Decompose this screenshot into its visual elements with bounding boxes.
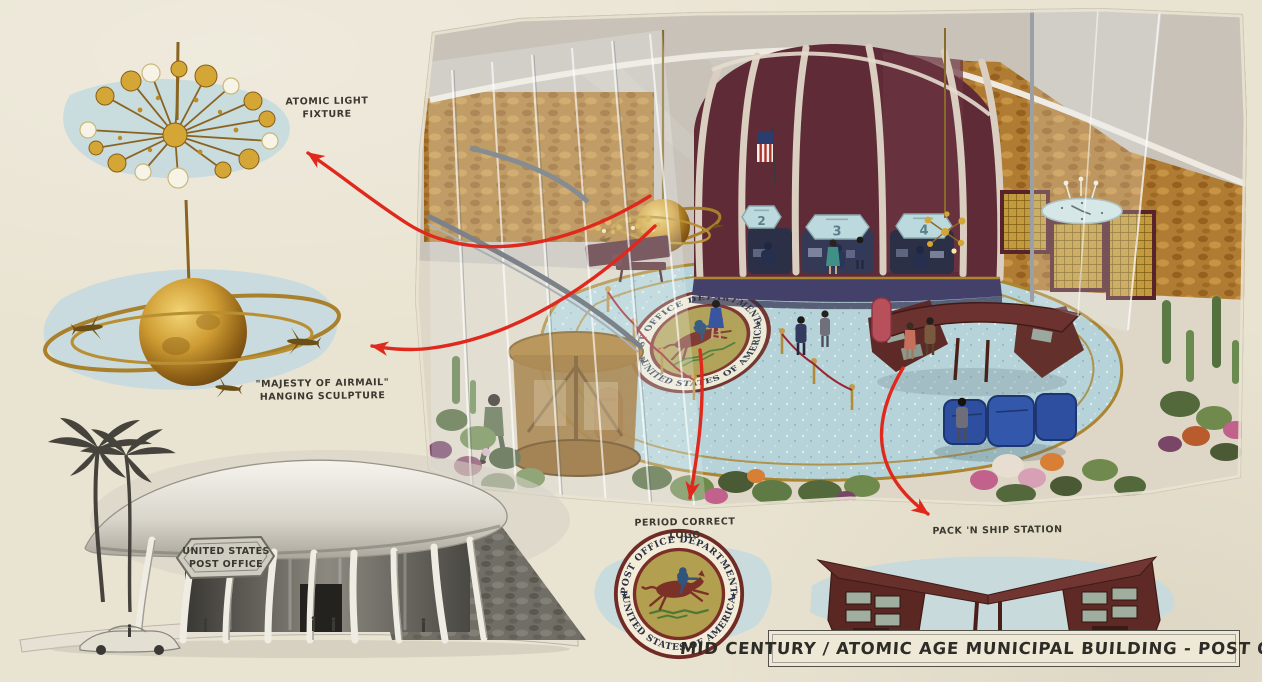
window-sign-2: 2 xyxy=(742,206,781,228)
logo-label: Period Correct Logo xyxy=(620,515,750,543)
building-sign: United States Post Office xyxy=(177,537,274,578)
building-exterior-sketch: United States Post Office xyxy=(10,420,610,682)
window-number: 2 xyxy=(757,214,765,228)
mail-bins xyxy=(934,394,1076,462)
pack-ship-label: Pack 'N Ship Station xyxy=(930,523,1065,538)
building-sign-line1: United States xyxy=(182,546,270,557)
window-number: 3 xyxy=(832,225,841,240)
light-fixture-label: Atomic Light Fixture xyxy=(262,94,392,122)
window-number: 4 xyxy=(919,224,928,239)
building-sign-line2: Post Office xyxy=(189,559,263,570)
airmail-label-line2: Hanging Sculpture xyxy=(255,389,390,404)
board-title: Mid Century / Atomic Age Municipal Build… xyxy=(679,639,1262,658)
concept-board: POST OFFICE DEPARTMENT UNITED STATES OF … xyxy=(0,0,1262,682)
service-counter-wall xyxy=(692,44,1002,309)
window-sign-3: 3 xyxy=(806,215,869,240)
title-block: Mid Century / Atomic Age Municipal Build… xyxy=(768,630,1240,667)
gold-globe xyxy=(139,278,247,386)
airmail-label: "Majesty of Airmail" Hanging Sculpture xyxy=(255,376,390,404)
